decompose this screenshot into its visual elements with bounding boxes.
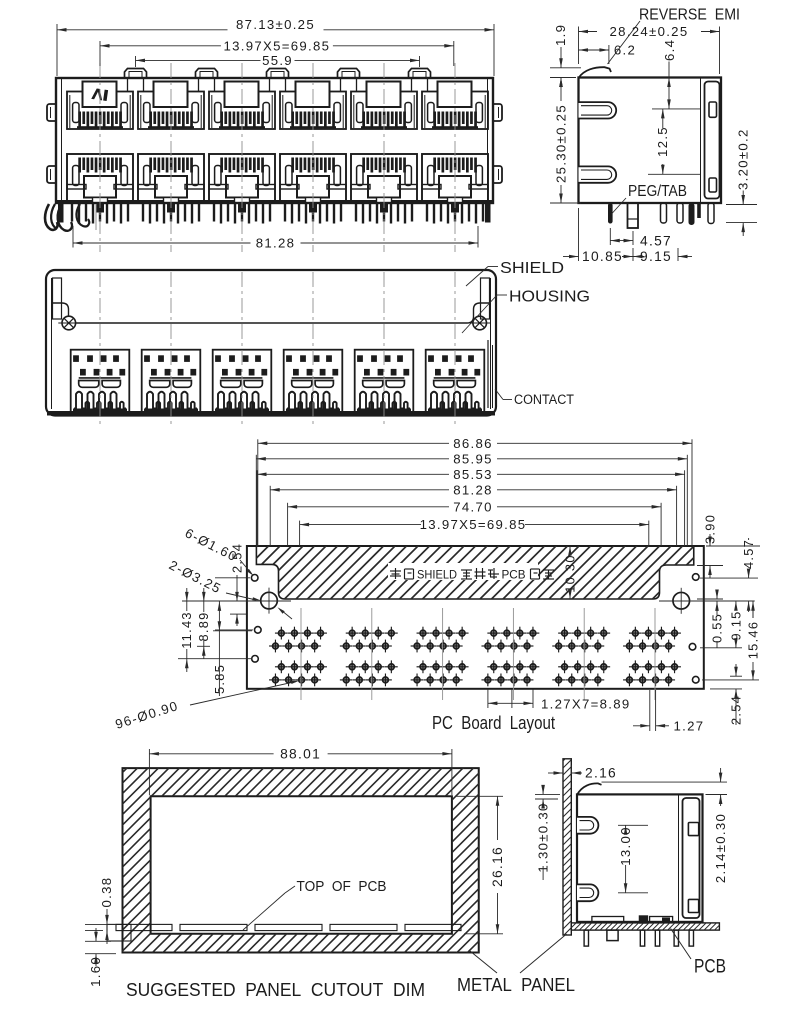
svg-text:26.16: 26.16 [490, 846, 505, 887]
svg-text:4.57: 4.57 [741, 539, 756, 569]
svg-text:81.28: 81.28 [256, 236, 296, 251]
svg-text:87.13±0.25: 87.13±0.25 [236, 17, 315, 32]
svg-text:74.70: 74.70 [453, 499, 493, 514]
svg-text:CONTACT: CONTACT [514, 392, 574, 407]
svg-text:0.38: 0.38 [99, 877, 114, 908]
svg-text:81.28: 81.28 [453, 482, 493, 497]
svg-text:2.54: 2.54 [230, 543, 245, 573]
svg-text:1.27X7=8.89: 1.27X7=8.89 [541, 697, 630, 712]
svg-text:1.30±0.30: 1.30±0.30 [536, 802, 551, 872]
svg-text:4.57: 4.57 [640, 234, 672, 249]
svg-text:3.20±0.2: 3.20±0.2 [736, 128, 751, 190]
svg-text:1.27: 1.27 [674, 718, 705, 733]
svg-text:28.24±0.25: 28.24±0.25 [610, 24, 689, 39]
svg-text:SHIELD: SHIELD [500, 260, 564, 277]
svg-text:55.9: 55.9 [262, 53, 293, 68]
svg-text:METAL PANEL: METAL PANEL [457, 974, 575, 995]
svg-text:6.2: 6.2 [614, 43, 636, 58]
svg-text:SHIELD: SHIELD [417, 568, 457, 582]
svg-text:13.00: 13.00 [618, 826, 633, 866]
svg-text:TOP OF PCB: TOP OF PCB [297, 878, 387, 895]
svg-text:6.4: 6.4 [662, 39, 677, 61]
svg-text:15.46: 15.46 [746, 621, 761, 660]
svg-text:0.55: 0.55 [710, 613, 725, 643]
svg-text:10.85: 10.85 [582, 249, 623, 264]
svg-text:2.16: 2.16 [585, 766, 617, 781]
svg-text:PCB: PCB [502, 568, 526, 582]
svg-text:2.14±0.30: 2.14±0.30 [713, 813, 728, 883]
svg-text:9.15: 9.15 [728, 610, 743, 640]
svg-text:85.53: 85.53 [453, 467, 493, 482]
svg-text:11.43: 11.43 [179, 611, 194, 649]
svg-text:1.9: 1.9 [553, 24, 568, 46]
svg-text:PC Board Layout: PC Board Layout [432, 712, 556, 733]
svg-text:13.97X5=69.85: 13.97X5=69.85 [224, 38, 331, 53]
svg-text:10.30: 10.30 [563, 554, 578, 593]
svg-text:PEG/TAB: PEG/TAB [628, 183, 687, 200]
svg-text:HOUSING: HOUSING [509, 289, 590, 306]
svg-text:25.30±0.25: 25.30±0.25 [554, 104, 569, 183]
svg-text:13.97X5=69.85: 13.97X5=69.85 [420, 517, 527, 532]
svg-text:85.95: 85.95 [453, 451, 493, 466]
svg-text:PCB: PCB [694, 957, 726, 978]
svg-text:88.01: 88.01 [280, 746, 321, 761]
svg-text:86.86: 86.86 [453, 436, 493, 451]
svg-text:9.15: 9.15 [640, 249, 672, 264]
svg-text:8.89: 8.89 [196, 611, 211, 641]
svg-text:REVERSE EMI: REVERSE EMI [639, 7, 740, 24]
svg-text:12.5: 12.5 [655, 126, 670, 157]
svg-text:SUGGESTED PANEL CUTOUT DIM: SUGGESTED PANEL CUTOUT DIM [126, 979, 425, 1000]
